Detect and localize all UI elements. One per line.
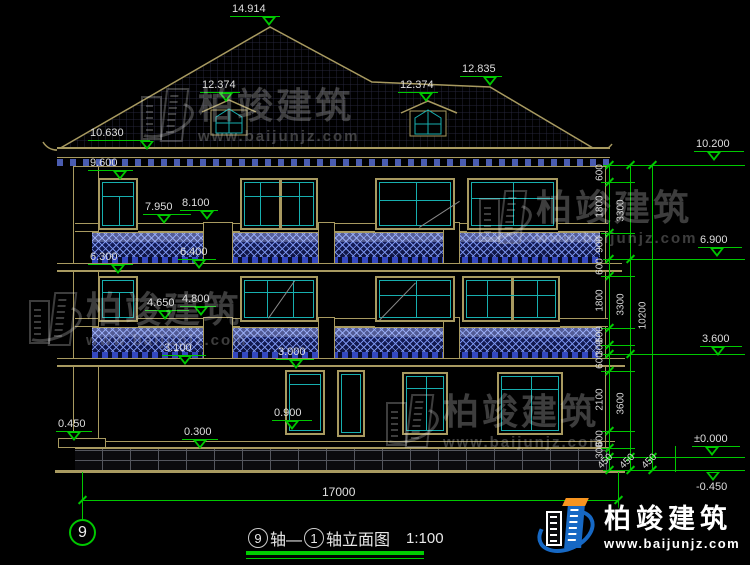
elevation-marker: 12.835 (460, 63, 502, 77)
elevation-drawing-canvas: 14.914 12.374 12.374 12.835 10.630 9.600… (0, 0, 750, 565)
elevation-value: ±0.000 (692, 433, 740, 445)
watermark-url: www.baijunjz.com (198, 128, 359, 145)
elevation-triangle-icon (483, 77, 497, 86)
window (375, 276, 455, 322)
elevation-marker: 3.000 (276, 346, 314, 360)
elevation-marker: 0.300 (182, 426, 218, 440)
drawing-title: 9轴—1轴立面图1:100 (246, 526, 444, 550)
watermark: 柏竣建筑 www.baijunjz.com (26, 288, 247, 350)
railing-pier (318, 222, 335, 264)
watermark: 柏竣建筑 www.baijunjz.com (383, 390, 604, 452)
total-width-value: 17000 (322, 485, 355, 499)
railing-pier (443, 317, 460, 359)
elevation-value: 3.000 (276, 346, 314, 358)
swoosh-icon (375, 401, 444, 451)
logo-building-icon (536, 496, 600, 560)
eave-dentils (57, 159, 610, 166)
window (337, 370, 365, 437)
elevation-marker: 0.900 (272, 407, 312, 421)
elevation-marker: 10.200 (694, 138, 744, 152)
elevation-value: 0.900 (272, 407, 312, 419)
watermark-building-icon (138, 84, 192, 144)
elevation-triangle-icon (192, 260, 206, 269)
site-logo: 柏竣建筑 www.baijunjz.com (536, 496, 740, 560)
watermark-name: 柏竣建筑 (536, 187, 692, 228)
watermark-url: www.baijunjz.com (536, 230, 697, 247)
elevation-value: -0.450 (694, 481, 740, 493)
watermark-name: 柏竣建筑 (443, 391, 599, 432)
floor-slab-2f (57, 358, 625, 367)
elevation-marker: 8.100 (180, 197, 218, 211)
window (375, 178, 455, 230)
elevation-value: 0.450 (56, 418, 92, 430)
elevation-value: 0.300 (182, 426, 218, 438)
elevation-value: 10.200 (694, 138, 744, 150)
elevation-marker: -0.450 (694, 470, 740, 494)
window (462, 276, 560, 322)
axis-number: 9 (78, 524, 87, 542)
elevation-triangle-icon (157, 215, 171, 224)
elevation-triangle-icon (111, 265, 125, 274)
elevation-marker: ±0.000 (692, 433, 740, 447)
logo-roof-bar (562, 498, 589, 506)
window (240, 276, 318, 322)
watermark-name: 柏竣建筑 (198, 85, 354, 126)
watermark-name: 柏竣建筑 (86, 289, 242, 330)
elevation-triangle-icon (706, 472, 720, 481)
watermark-building-icon (476, 186, 530, 246)
elevation-triangle-icon (707, 152, 721, 161)
elevation-marker: 9.600 (88, 157, 133, 171)
elevation-triangle-icon (200, 211, 214, 220)
elevation-value: 8.100 (180, 197, 218, 209)
elevation-value: 12.835 (460, 63, 502, 75)
logo-building-left (546, 511, 562, 546)
dim-label: 3600 (616, 382, 627, 426)
elevation-triangle-icon (262, 17, 276, 26)
axis-circle-1: 1 (304, 528, 324, 548)
dim-extension (603, 165, 745, 166)
watermark: 柏竣建筑 www.baijunjz.com (476, 186, 697, 248)
elevation-triangle-icon (285, 421, 299, 430)
window (98, 178, 138, 230)
watermark: 柏竣建筑 www.baijunjz.com (138, 84, 359, 146)
elevation-marker: 14.914 (230, 3, 280, 17)
swoosh-icon (18, 299, 87, 349)
elevation-marker: 3.600 (700, 333, 742, 347)
dim-extension (603, 354, 745, 355)
dim-label: 10200 (638, 294, 649, 338)
elevation-value: 6.400 (178, 246, 216, 258)
elevation-triangle-icon (705, 447, 719, 456)
axis-bubble: 9 (69, 519, 96, 546)
title-underline-thin (246, 558, 424, 559)
elevation-value: 6.300 (88, 251, 133, 263)
title-underline-thick (246, 551, 424, 555)
elevation-value: 9.600 (88, 157, 133, 169)
elevation-value: 14.914 (230, 3, 280, 15)
elevation-value: 6.900 (698, 234, 742, 246)
logo-url: www.baijunjz.com (604, 536, 740, 551)
logo-name: 柏竣建筑 (604, 504, 732, 534)
swoosh-icon (468, 197, 537, 247)
dim-label: 600 (595, 339, 606, 383)
title-segment: 轴— (270, 526, 302, 550)
scale-label: 1:100 (406, 530, 444, 547)
title-segment: 轴立面图 (326, 526, 390, 550)
axis-circle-9: 9 (248, 528, 268, 548)
elevation-value: 12.374 (398, 79, 438, 91)
elevation-triangle-icon (178, 356, 192, 365)
ground-line (55, 470, 625, 473)
elevation-triangle-icon (419, 93, 433, 102)
sill-band (75, 223, 98, 232)
dim-extension (82, 472, 83, 520)
elevation-marker: 6.900 (698, 234, 742, 248)
elevation-triangle-icon (193, 440, 207, 449)
elevation-marker: 6.300 (88, 251, 133, 265)
left-pedestal-cap (58, 438, 106, 448)
left-eave-tip (43, 142, 57, 150)
elevation-value: 3.600 (700, 333, 742, 345)
watermark-url: www.baijunjz.com (443, 434, 604, 451)
elevation-triangle-icon (113, 171, 127, 180)
railing-pier (318, 317, 335, 359)
swoosh-icon (130, 95, 199, 145)
elevation-marker: 6.400 (178, 246, 216, 260)
watermark-building-icon (383, 390, 437, 450)
elevation-triangle-icon (67, 432, 81, 441)
dim-line (675, 446, 676, 472)
floor-slab-3f (57, 263, 622, 272)
elevation-marker: 0.450 (56, 418, 92, 432)
watermark-url: www.baijunjz.com (86, 332, 247, 349)
elevation-marker: 12.374 (398, 79, 438, 93)
elevation-triangle-icon (710, 248, 724, 257)
window (240, 178, 318, 230)
dim-extension (603, 259, 745, 260)
dim-label: 3300 (616, 283, 627, 327)
watermark-building-icon (26, 288, 80, 348)
elevation-triangle-icon (289, 360, 303, 369)
